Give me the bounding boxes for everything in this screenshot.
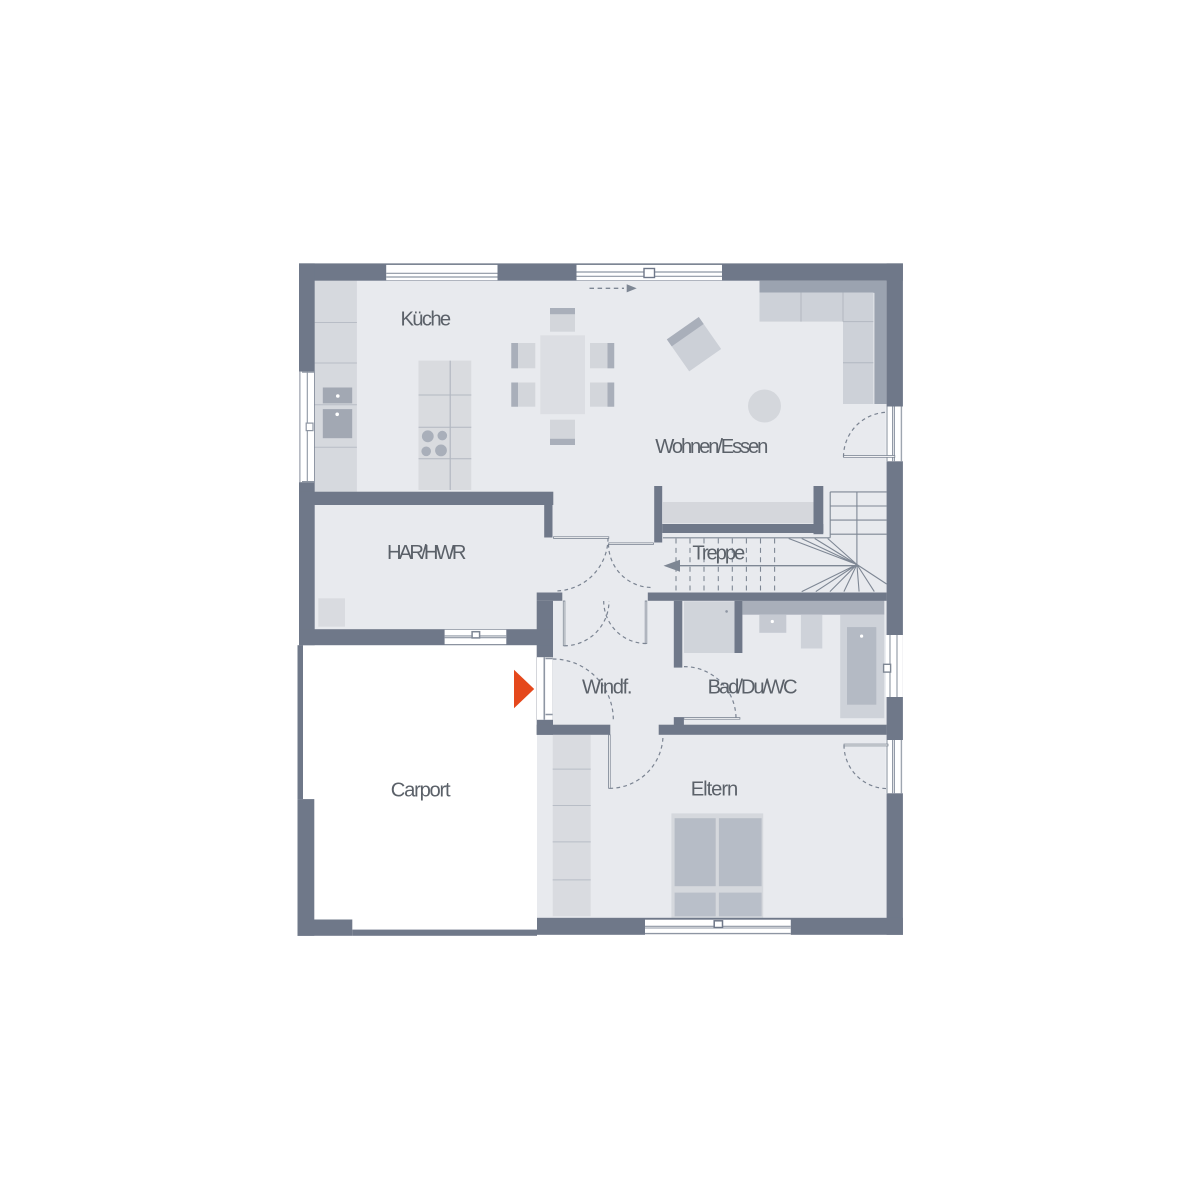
svg-text:Treppe: Treppe (692, 543, 745, 565)
svg-text:Eltern: Eltern (691, 778, 739, 800)
svg-text:Bad/Du/WC: Bad/Du/WC (708, 676, 798, 698)
svg-text:Carport: Carport (391, 779, 451, 801)
svg-text:Küche: Küche (400, 309, 451, 331)
svg-text:HAR/HWR: HAR/HWR (387, 542, 467, 564)
svg-text:Windf.: Windf. (582, 676, 633, 698)
svg-text:Wohnen/Essen: Wohnen/Essen (655, 436, 768, 458)
